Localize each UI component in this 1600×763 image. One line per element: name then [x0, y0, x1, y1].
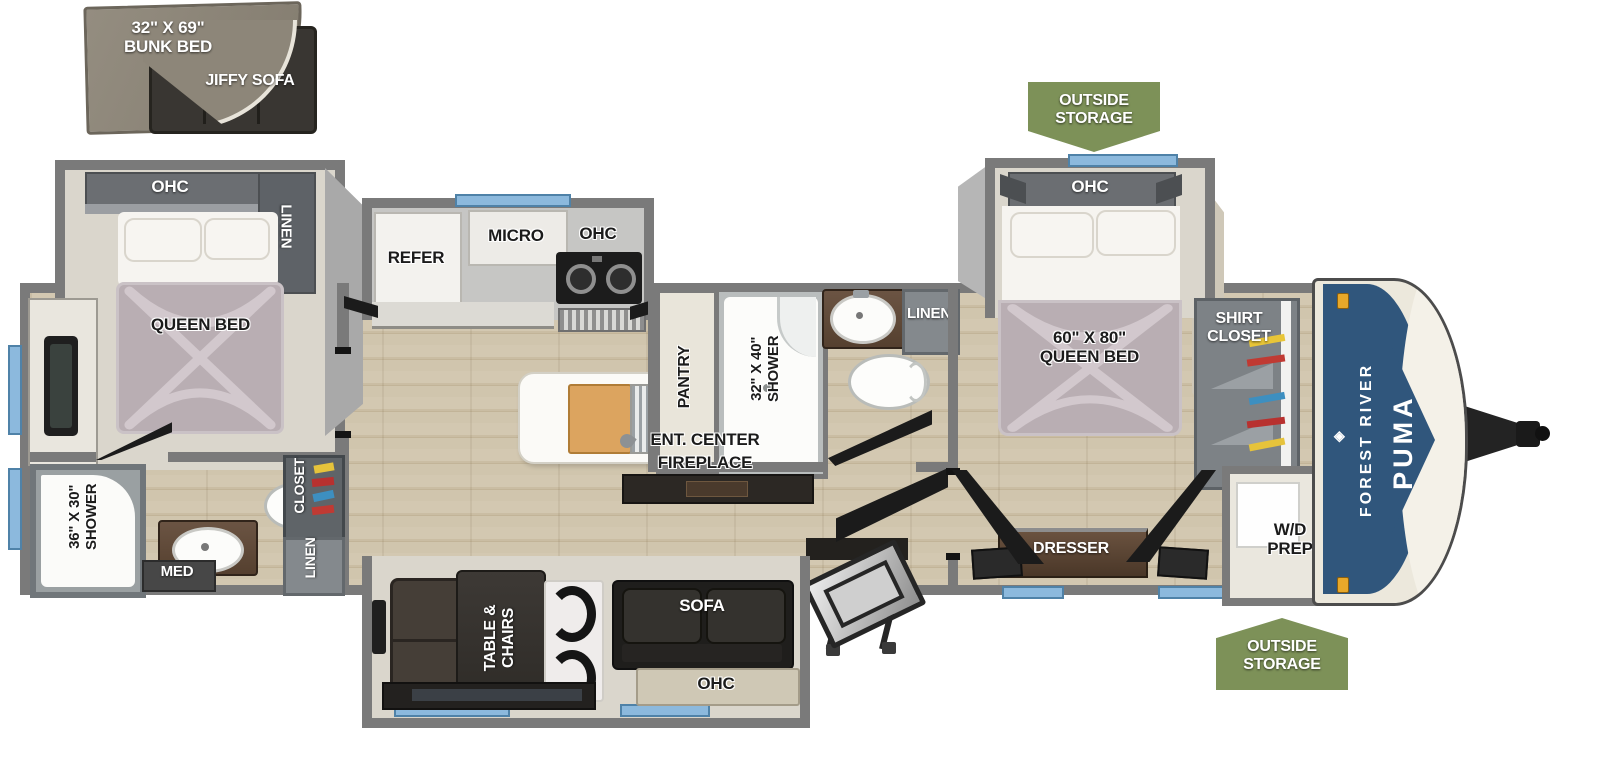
- kitchen-counter: [372, 302, 554, 329]
- cooktop: [556, 252, 642, 304]
- microwave: [468, 210, 568, 266]
- shirt-closet: [1194, 298, 1300, 490]
- tv-console: [382, 682, 596, 710]
- wardrobe-closet: [283, 455, 345, 543]
- nightstand: [1157, 546, 1209, 579]
- window: [455, 194, 571, 207]
- wall: [948, 560, 958, 590]
- clearance-light: [1337, 293, 1349, 309]
- slide-side-panel: [958, 165, 988, 300]
- mid-shower-stall: [714, 287, 828, 479]
- sink: [830, 294, 896, 344]
- front-cap: ◈ FOREST RIVER PUMA: [1312, 278, 1468, 606]
- rear-linen2-cabinet: [283, 537, 345, 596]
- window: [8, 468, 22, 550]
- wall: [948, 283, 958, 473]
- dinette-chair: [548, 586, 596, 642]
- wall: [648, 462, 828, 472]
- entertainment-center: [622, 474, 814, 504]
- wall: [30, 452, 96, 462]
- sofa-ohc: [636, 668, 800, 706]
- slide-tv: [372, 600, 386, 654]
- refrigerator: [374, 212, 462, 308]
- window: [1002, 586, 1064, 599]
- rear-queen-bed: [116, 282, 284, 434]
- rear-shower-stall: [30, 464, 146, 598]
- entry-steps: [808, 552, 918, 664]
- front-ohc-cabinet: [1008, 172, 1176, 210]
- wall: [337, 283, 349, 353]
- floorplan-canvas: 32" X 69" BUNK BED JIFFY SOFA OHC LINEN …: [0, 0, 1600, 763]
- outside-storage-badge: [1216, 618, 1348, 690]
- rear-ohc-cabinet: [85, 172, 264, 208]
- sofa: [612, 580, 794, 670]
- clearance-light: [1337, 577, 1349, 593]
- window: [1068, 154, 1178, 167]
- pantry: [656, 289, 722, 475]
- med-cabinet: [142, 560, 216, 592]
- front-queen-bed: [998, 300, 1182, 436]
- bunk-inset: 32" X 69" BUNK BED JIFFY SOFA: [85, 0, 315, 134]
- window: [8, 345, 22, 435]
- outside-storage-badge: [1028, 82, 1160, 152]
